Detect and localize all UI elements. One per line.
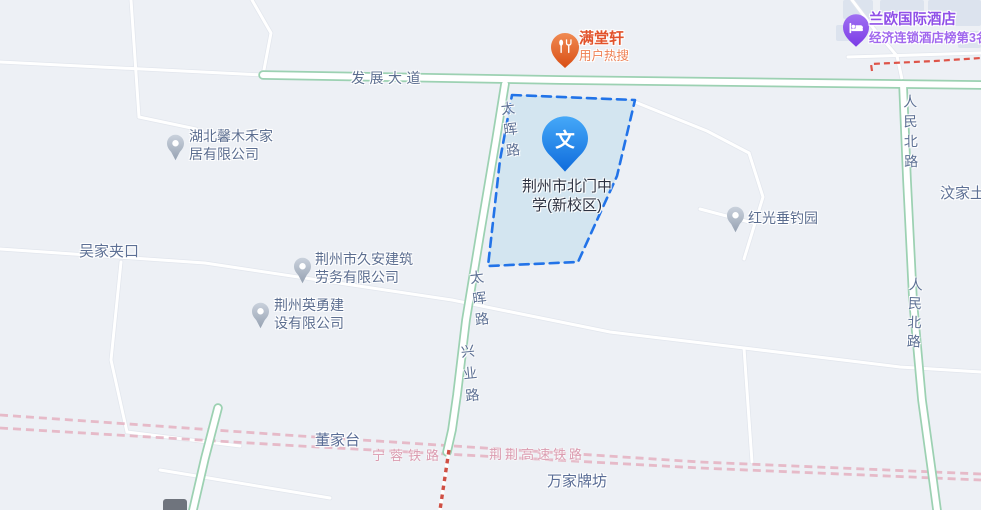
- company-yingyong-line1: 荆州英勇建: [274, 297, 344, 315]
- place-label-wujiajiakou[interactable]: 吴家夹口: [79, 243, 139, 261]
- hotel-subtitle: 经济连锁酒店榜第3名: [869, 31, 981, 46]
- place-label-wanjiapaifang[interactable]: 万家牌坊: [547, 473, 607, 491]
- company-poi-marker-xinmuhe[interactable]: [167, 134, 184, 166]
- restaurant-pin-icon: [551, 33, 579, 68]
- school-glyph: 文: [555, 128, 575, 151]
- railway-label-ningrong: 宁蓉铁路: [372, 445, 444, 464]
- company-label-xinmuhe[interactable]: 湖北馨木禾家 居有限公司: [189, 128, 273, 163]
- company-jiuan-line1: 荆州市久安建筑: [315, 251, 413, 269]
- hotel-poi-marker[interactable]: [843, 14, 869, 52]
- poi-pin-icon: [294, 257, 311, 284]
- road-label-fazhan-dadao: 发展大道: [351, 70, 425, 88]
- restaurant-subtitle: 用户热搜: [579, 49, 629, 64]
- poi-pin-icon: [252, 302, 269, 329]
- school-name-line2: 学(新校区): [505, 196, 629, 215]
- school-poi-marker[interactable]: 文: [542, 116, 588, 177]
- school-pin-icon: 文: [542, 116, 588, 172]
- school-name-line1: 荆州市北门中: [505, 177, 629, 196]
- company-label-jiuan[interactable]: 荆州市久安建筑 劳务有限公司: [315, 251, 413, 286]
- company-poi-marker-yingyong[interactable]: [252, 302, 269, 334]
- poi-pin-icon: [727, 206, 744, 233]
- company-label-yingyong[interactable]: 荆州英勇建 设有限公司: [274, 297, 344, 332]
- map-base-layer: [0, 0, 981, 510]
- poi-label-hongguang[interactable]: 红光垂钓园: [748, 210, 818, 228]
- hotel-pin-icon: [843, 14, 869, 47]
- restaurant-name: 满堂轩: [579, 30, 629, 47]
- poi-pin-icon: [167, 134, 184, 161]
- company-xinmuhe-line2: 居有限公司: [189, 146, 273, 164]
- map-control-cutoff[interactable]: [163, 499, 187, 510]
- railway-label-jingjing: 荆荆高速铁路: [489, 444, 585, 463]
- company-poi-marker-jiuan[interactable]: [294, 257, 311, 289]
- hotel-label[interactable]: 兰欧国际酒店 经济连锁酒店榜第3名: [869, 12, 981, 46]
- company-xinmuhe-line1: 湖北馨木禾家: [189, 128, 273, 146]
- place-label-wenjia[interactable]: 汶家土: [940, 185, 981, 203]
- restaurant-poi-marker[interactable]: [551, 33, 579, 73]
- company-yingyong-line2: 设有限公司: [274, 315, 344, 333]
- road-label-renmin-lower: 人民北路: [903, 277, 926, 354]
- place-label-dongjiatai[interactable]: 董家台: [315, 432, 360, 450]
- hotel-name: 兰欧国际酒店: [869, 12, 981, 28]
- restaurant-label[interactable]: 满堂轩 用户热搜: [579, 30, 629, 64]
- boundary-line: [871, 58, 981, 71]
- school-name-label[interactable]: 荆州市北门中 学(新校区): [505, 177, 629, 215]
- map-canvas[interactable]: 发展大道 太晖路 太晖路 兴业路 人民北路 人民北路 宁蓉铁路 荆荆高速铁路 文…: [0, 0, 981, 510]
- company-jiuan-line2: 劳务有限公司: [315, 269, 413, 287]
- poi-marker-hongguang[interactable]: [727, 206, 744, 238]
- road-label-renmin-upper: 人民北路: [900, 94, 921, 174]
